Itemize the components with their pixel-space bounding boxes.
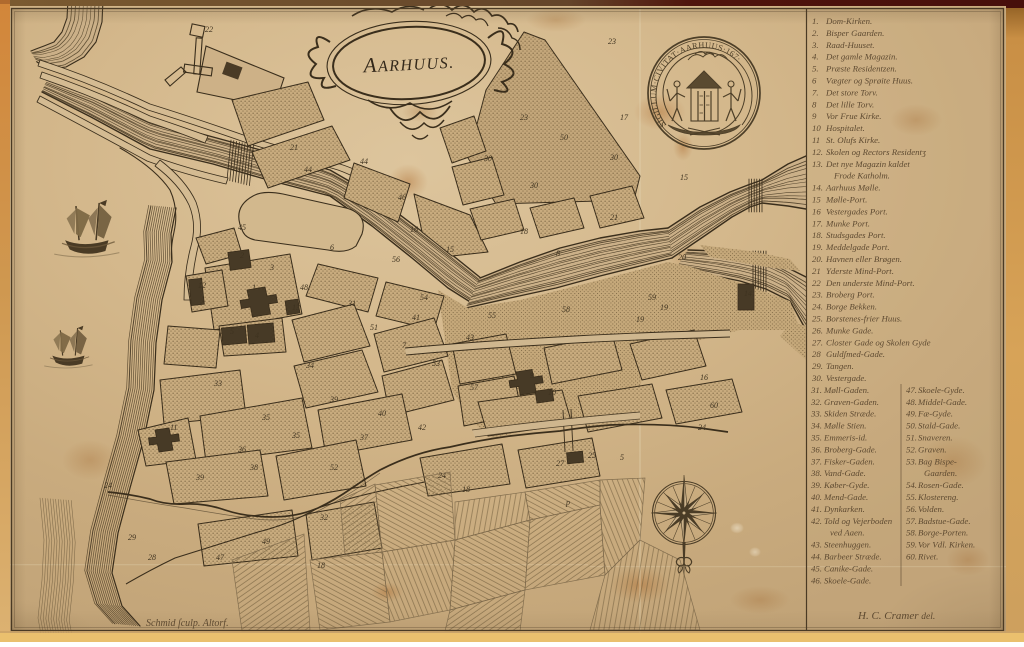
svg-text:Vor Vdl. Kirken.: Vor Vdl. Kirken. [918, 540, 975, 550]
svg-text:34.: 34. [810, 421, 822, 431]
svg-text:38.: 38. [810, 468, 822, 478]
svg-text:56.: 56. [906, 504, 917, 514]
svg-text:35.: 35. [810, 433, 822, 443]
svg-text:49: 49 [262, 537, 270, 546]
svg-text:1.: 1. [812, 16, 819, 26]
svg-text:p: p [565, 498, 570, 507]
svg-text:23.: 23. [812, 290, 823, 300]
svg-text:15: 15 [812, 195, 821, 205]
svg-text:44.: 44. [811, 552, 822, 562]
svg-text:18: 18 [520, 227, 528, 236]
svg-text:Munke Gade.: Munke Gade. [825, 325, 873, 335]
svg-text:22: 22 [205, 25, 213, 34]
svg-text:43.: 43. [811, 540, 822, 550]
svg-text:Klostereng.: Klostereng. [917, 492, 958, 502]
svg-text:59.: 59. [906, 540, 917, 550]
svg-text:12: 12 [198, 281, 206, 290]
svg-text:33.: 33. [810, 409, 822, 419]
svg-text:37: 37 [359, 433, 369, 442]
svg-text:39: 39 [329, 395, 338, 404]
svg-text:8: 8 [556, 249, 560, 258]
svg-text:57.: 57. [906, 516, 917, 526]
svg-text:Køber-Gyde.: Køber-Gyde. [823, 480, 870, 490]
svg-text:30.: 30. [811, 373, 823, 383]
svg-text:9: 9 [530, 371, 534, 380]
svg-text:27.: 27. [812, 337, 823, 347]
svg-text:46.: 46. [811, 575, 822, 585]
svg-text:41.: 41. [811, 504, 822, 514]
svg-text:Tangen.: Tangen. [826, 361, 854, 371]
svg-text:Skoele-Gyde.: Skoele-Gyde. [918, 385, 965, 395]
svg-text:32.: 32. [810, 397, 822, 407]
svg-text:25.: 25. [812, 314, 823, 324]
svg-text:12.: 12. [812, 147, 823, 157]
svg-text:14: 14 [744, 289, 752, 298]
svg-text:14.: 14. [812, 183, 823, 193]
svg-text:Emmeris-id.: Emmeris-id. [823, 433, 867, 443]
svg-text:Rosen-Gade.: Rosen-Gade. [917, 480, 964, 490]
svg-text:Vand-Gade.: Vand-Gade. [824, 468, 866, 478]
svg-text:5: 5 [620, 453, 624, 462]
svg-text:30: 30 [529, 181, 538, 190]
svg-text:40.: 40. [811, 492, 822, 502]
svg-text:43: 43 [466, 333, 474, 342]
svg-text:53.: 53. [906, 456, 917, 466]
svg-text:Canike-Gade.: Canike-Gade. [824, 563, 873, 573]
svg-text:Vor Frue Kirke.: Vor Frue Kirke. [826, 111, 881, 121]
svg-text:33: 33 [213, 379, 222, 388]
svg-text:26.: 26. [812, 325, 823, 335]
svg-text:Bisper Gaarden.: Bisper Gaarden. [826, 28, 884, 38]
svg-text:47.: 47. [906, 385, 917, 395]
svg-text:Fisker-Gaden.: Fisker-Gaden. [823, 456, 875, 466]
svg-text:Guldʃmed-Gade.: Guldʃmed-Gade. [826, 349, 885, 359]
svg-text:24: 24 [104, 481, 112, 490]
svg-text:Meddelgade Port.: Meddelgade Port. [825, 242, 890, 252]
svg-text:28: 28 [148, 553, 156, 562]
svg-text:45: 45 [238, 223, 246, 232]
svg-text:19: 19 [636, 315, 644, 324]
svg-text:ved Aaen.: ved Aaen. [830, 528, 865, 538]
svg-text:46: 46 [398, 193, 406, 202]
svg-text:54.: 54. [906, 480, 917, 490]
svg-text:Borge Bekken.: Borge Bekken. [826, 302, 877, 312]
svg-text:48.: 48. [906, 397, 917, 407]
svg-text:Snaveren.: Snaveren. [918, 433, 953, 443]
svg-text:24: 24 [438, 471, 446, 480]
svg-text:30: 30 [483, 154, 492, 163]
svg-text:42.: 42. [811, 516, 822, 526]
svg-text:18.: 18. [812, 230, 823, 240]
svg-text:Bag Bispe-: Bag Bispe- [918, 456, 957, 466]
svg-text:Rivet.: Rivet. [917, 552, 938, 562]
svg-text:52.: 52. [906, 444, 917, 454]
svg-text:13: 13 [292, 303, 300, 312]
svg-text:34: 34 [305, 361, 314, 370]
svg-text:5.: 5. [812, 64, 819, 74]
svg-text:Studsgades Port.: Studsgades Port. [826, 230, 886, 240]
svg-text:35: 35 [261, 413, 270, 422]
svg-text:23: 23 [520, 113, 528, 122]
svg-text:16: 16 [410, 225, 418, 234]
svg-text:2.: 2. [812, 28, 819, 38]
svg-text:Closter Gade og Skolen Gyde: Closter Gade og Skolen Gyde [826, 337, 931, 347]
svg-text:17.: 17. [812, 218, 823, 228]
svg-text:9: 9 [812, 111, 817, 121]
svg-text:28: 28 [812, 349, 821, 359]
svg-text:51: 51 [370, 323, 378, 332]
svg-text:19: 19 [660, 303, 668, 312]
svg-text:4.: 4. [812, 52, 819, 62]
svg-text:8: 8 [812, 99, 817, 109]
svg-text:32: 32 [319, 513, 328, 522]
svg-text:Skoele-Gade.: Skoele-Gade. [824, 575, 871, 585]
svg-text:Det gamle Magazin.: Det gamle Magazin. [825, 52, 898, 62]
svg-text:48: 48 [300, 283, 308, 292]
svg-text:35: 35 [291, 431, 300, 440]
svg-text:Graven-Gaden.: Graven-Gaden. [824, 397, 879, 407]
svg-text:36.: 36. [810, 444, 822, 454]
svg-text:Raad-Huuset.: Raad-Huuset. [825, 40, 875, 50]
svg-text:47: 47 [216, 553, 225, 562]
svg-text:55.: 55. [906, 492, 917, 502]
svg-text:31: 31 [347, 299, 356, 308]
svg-text:6: 6 [812, 76, 817, 86]
svg-text:10: 10 [548, 388, 556, 397]
svg-text:6: 6 [330, 243, 334, 252]
svg-text:Schmid ſculp. Altorf.: Schmid ſculp. Altorf. [146, 618, 229, 629]
svg-text:44: 44 [304, 165, 312, 174]
svg-text:53: 53 [432, 359, 440, 368]
svg-text:50: 50 [560, 133, 568, 142]
svg-text:39.: 39. [810, 480, 822, 490]
svg-text:10: 10 [812, 123, 821, 133]
svg-text:21: 21 [610, 213, 618, 222]
svg-text:Skiden Stræde.: Skiden Stræde. [824, 409, 876, 419]
svg-text:Steenhuggen.: Steenhuggen. [824, 540, 871, 550]
svg-text:24: 24 [698, 423, 706, 432]
svg-text:21: 21 [290, 143, 298, 152]
svg-text:60.: 60. [906, 552, 917, 562]
svg-text:Told og Vejerboden: Told og Vejerboden [824, 516, 893, 526]
svg-text:50.: 50. [906, 421, 917, 431]
svg-text:11: 11 [812, 135, 820, 145]
svg-text:Aarhuus Mølle.: Aarhuus Mølle. [825, 183, 881, 193]
svg-text:23: 23 [608, 37, 616, 46]
svg-text:60: 60 [710, 401, 718, 410]
svg-text:7.: 7. [812, 87, 819, 97]
svg-text:16: 16 [812, 206, 821, 216]
svg-text:Yderste Mind-Port.: Yderste Mind-Port. [826, 266, 894, 276]
svg-text:55: 55 [488, 311, 496, 320]
svg-text:44: 44 [360, 157, 368, 166]
svg-text:29.: 29. [812, 361, 823, 371]
svg-text:42: 42 [418, 423, 426, 432]
svg-text:21: 21 [812, 266, 821, 276]
svg-text:15: 15 [680, 173, 688, 182]
svg-text:Dom-Kirken.: Dom-Kirken. [825, 16, 872, 26]
svg-text:Præste Residentzen.: Præste Residentzen. [825, 64, 897, 74]
svg-text:18: 18 [462, 485, 470, 494]
svg-text:17: 17 [620, 113, 629, 122]
svg-text:5: 5 [230, 327, 234, 336]
svg-text:37.: 37. [810, 456, 822, 466]
svg-text:Broberg-Gade.: Broberg-Gade. [824, 444, 877, 454]
svg-text:31.: 31. [810, 385, 822, 395]
svg-text:20.: 20. [812, 254, 823, 264]
svg-text:36: 36 [237, 445, 246, 454]
svg-text:Den underste Mind-Port.: Den underste Mind-Port. [825, 278, 915, 288]
svg-text:1: 1 [252, 283, 256, 292]
svg-text:19.: 19. [812, 242, 823, 252]
svg-text:Fæ-Gyde.: Fæ-Gyde. [917, 409, 953, 419]
svg-text:Frode Katholm.: Frode Katholm. [833, 171, 890, 181]
svg-text:51.: 51. [906, 433, 917, 443]
svg-text:Mølle-Port.: Mølle-Port. [825, 195, 867, 205]
svg-text:20: 20 [678, 253, 686, 262]
svg-text:Mend-Gade.: Mend-Gade. [823, 492, 868, 502]
svg-text:Gaarden.: Gaarden. [924, 468, 957, 478]
svg-text:Møll-Gaden.: Møll-Gaden. [823, 385, 869, 395]
svg-text:Vestergades Port.: Vestergades Port. [826, 206, 888, 216]
svg-text:St. Olufs Kirke.: St. Olufs Kirke. [826, 135, 880, 145]
svg-text:Skolen og Rectors Residentʒ: Skolen og Rectors Residentʒ [826, 147, 926, 157]
svg-text:16: 16 [700, 373, 708, 382]
svg-text:29: 29 [128, 533, 136, 542]
svg-text:Munke Port.: Munke Port. [825, 218, 870, 228]
svg-text:H. C. Cramer del.: H. C. Cramer del. [857, 610, 935, 622]
svg-text:Volden.: Volden. [918, 504, 944, 514]
svg-text:Vægter og Sprøite Huus.: Vægter og Sprøite Huus. [826, 76, 913, 86]
svg-text:27: 27 [556, 459, 565, 468]
svg-text:Graven.: Graven. [918, 444, 947, 454]
svg-text:18: 18 [317, 561, 325, 570]
svg-text:11: 11 [170, 423, 177, 432]
svg-text:58: 58 [562, 305, 570, 314]
svg-text:22: 22 [812, 278, 821, 288]
svg-text:24.: 24. [812, 302, 823, 312]
svg-text:4: 4 [255, 331, 259, 340]
svg-text:Det store Torv.: Det store Torv. [825, 87, 878, 97]
svg-text:Borstenes-frier Huus.: Borstenes-frier Huus. [826, 314, 902, 324]
svg-text:Broberg Port.: Broberg Port. [826, 290, 875, 300]
svg-text:45.: 45. [811, 563, 822, 573]
svg-text:13.: 13. [812, 159, 823, 169]
svg-text:Vestergade.: Vestergade. [826, 373, 866, 383]
svg-text:Det nye Magazin kaldet: Det nye Magazin kaldet [825, 159, 910, 169]
svg-text:58.: 58. [906, 528, 917, 538]
svg-text:41: 41 [412, 313, 420, 322]
svg-text:57: 57 [470, 383, 479, 392]
svg-text:Mølle Stien.: Mølle Stien. [823, 421, 867, 431]
svg-text:3.: 3. [811, 40, 819, 50]
svg-text:30: 30 [609, 153, 618, 162]
svg-text:Det lille Torv.: Det lille Torv. [825, 99, 874, 109]
svg-text:25: 25 [588, 451, 596, 460]
svg-text:3: 3 [269, 263, 274, 272]
svg-text:Badstue-Gade.: Badstue-Gade. [918, 516, 971, 526]
svg-text:59: 59 [648, 293, 656, 302]
svg-text:Dynkarken.: Dynkarken. [823, 504, 865, 514]
svg-text:Middel-Gade.: Middel-Gade. [917, 397, 967, 407]
svg-text:39: 39 [195, 473, 204, 482]
svg-text:49.: 49. [906, 409, 917, 419]
svg-text:56: 56 [392, 255, 400, 264]
svg-text:38: 38 [249, 463, 258, 472]
svg-text:Havnen eller Brøgen.: Havnen eller Brøgen. [825, 254, 902, 264]
svg-text:54: 54 [420, 293, 428, 302]
svg-text:15: 15 [446, 245, 454, 254]
svg-text:40: 40 [378, 409, 386, 418]
svg-text:Hospitalet.: Hospitalet. [825, 123, 865, 133]
svg-text:Stald-Gade.: Stald-Gade. [918, 421, 960, 431]
svg-text:Borge-Porten.: Borge-Porten. [918, 528, 968, 538]
svg-text:2: 2 [240, 251, 244, 260]
svg-text:Barbeer Stræde.: Barbeer Stræde. [824, 552, 882, 562]
svg-text:52: 52 [330, 463, 338, 472]
